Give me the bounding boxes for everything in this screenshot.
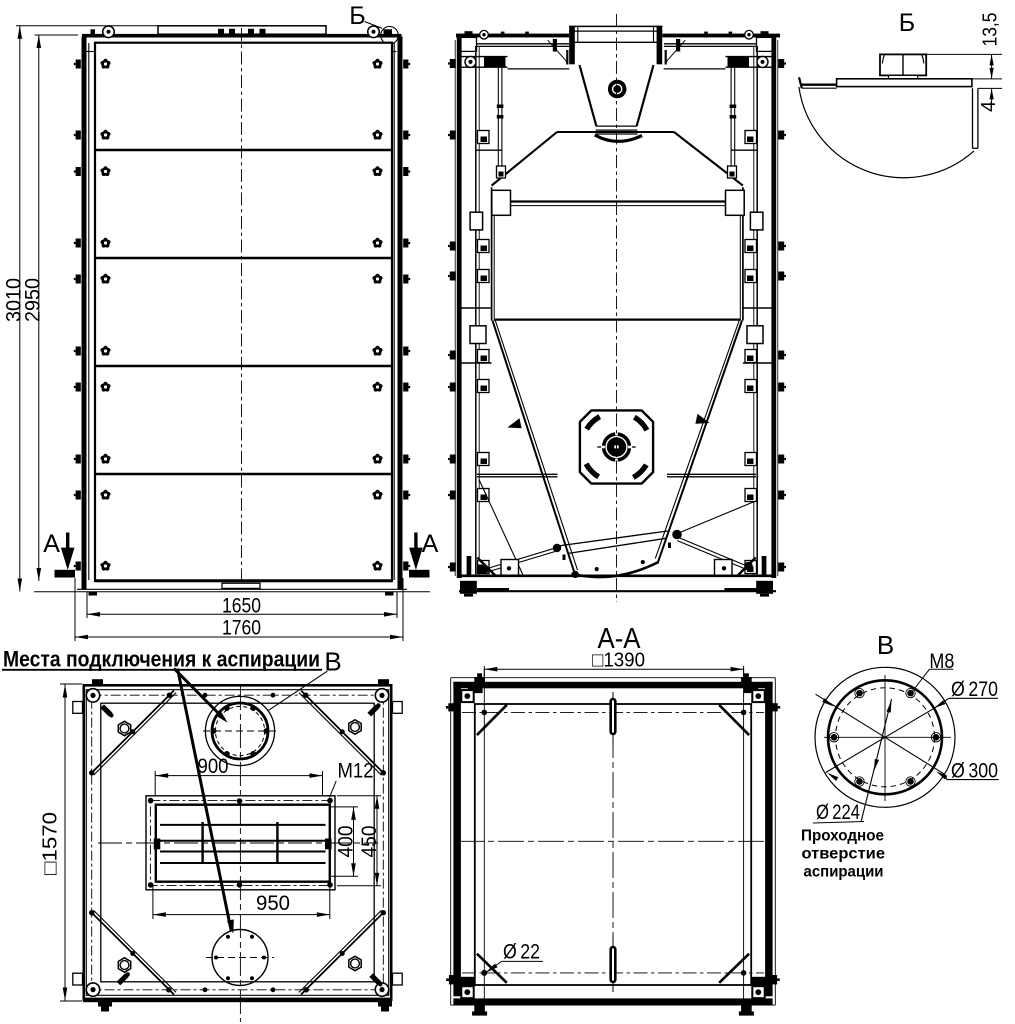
svg-text:900: 900 bbox=[198, 755, 229, 778]
svg-text:Проходное: Проходное bbox=[801, 827, 884, 844]
svg-text:950: 950 bbox=[256, 892, 290, 915]
svg-text:Ø 270: Ø 270 bbox=[951, 678, 998, 701]
svg-text:отверстие: отверстие bbox=[802, 846, 886, 863]
svg-text:Ø 300: Ø 300 bbox=[951, 760, 998, 783]
svg-text:M12: M12 bbox=[338, 760, 374, 783]
svg-text:Ø 22: Ø 22 bbox=[503, 941, 540, 964]
svg-text:400: 400 bbox=[335, 826, 358, 858]
svg-text:□1570: □1570 bbox=[40, 812, 62, 875]
svg-text:450: 450 bbox=[358, 826, 381, 858]
svg-text:4: 4 bbox=[978, 101, 1000, 112]
svg-text:1760: 1760 bbox=[222, 617, 261, 640]
svg-text:Б: Б bbox=[899, 9, 915, 37]
svg-text:А: А bbox=[43, 530, 60, 558]
svg-text:В: В bbox=[877, 630, 894, 660]
svg-text:Ø 224: Ø 224 bbox=[816, 801, 860, 824]
svg-text:Места подключения к аспирации: Места подключения к аспирации bbox=[3, 647, 320, 672]
svg-text:Б: Б bbox=[349, 2, 365, 30]
svg-text:А: А bbox=[422, 530, 439, 558]
svg-text:1650: 1650 bbox=[222, 595, 261, 618]
svg-text:13,5: 13,5 bbox=[980, 13, 1002, 47]
svg-text:аспирации: аспирации bbox=[804, 864, 884, 881]
svg-text:2950: 2950 bbox=[22, 278, 45, 322]
svg-text:□1390: □1390 bbox=[592, 650, 645, 672]
